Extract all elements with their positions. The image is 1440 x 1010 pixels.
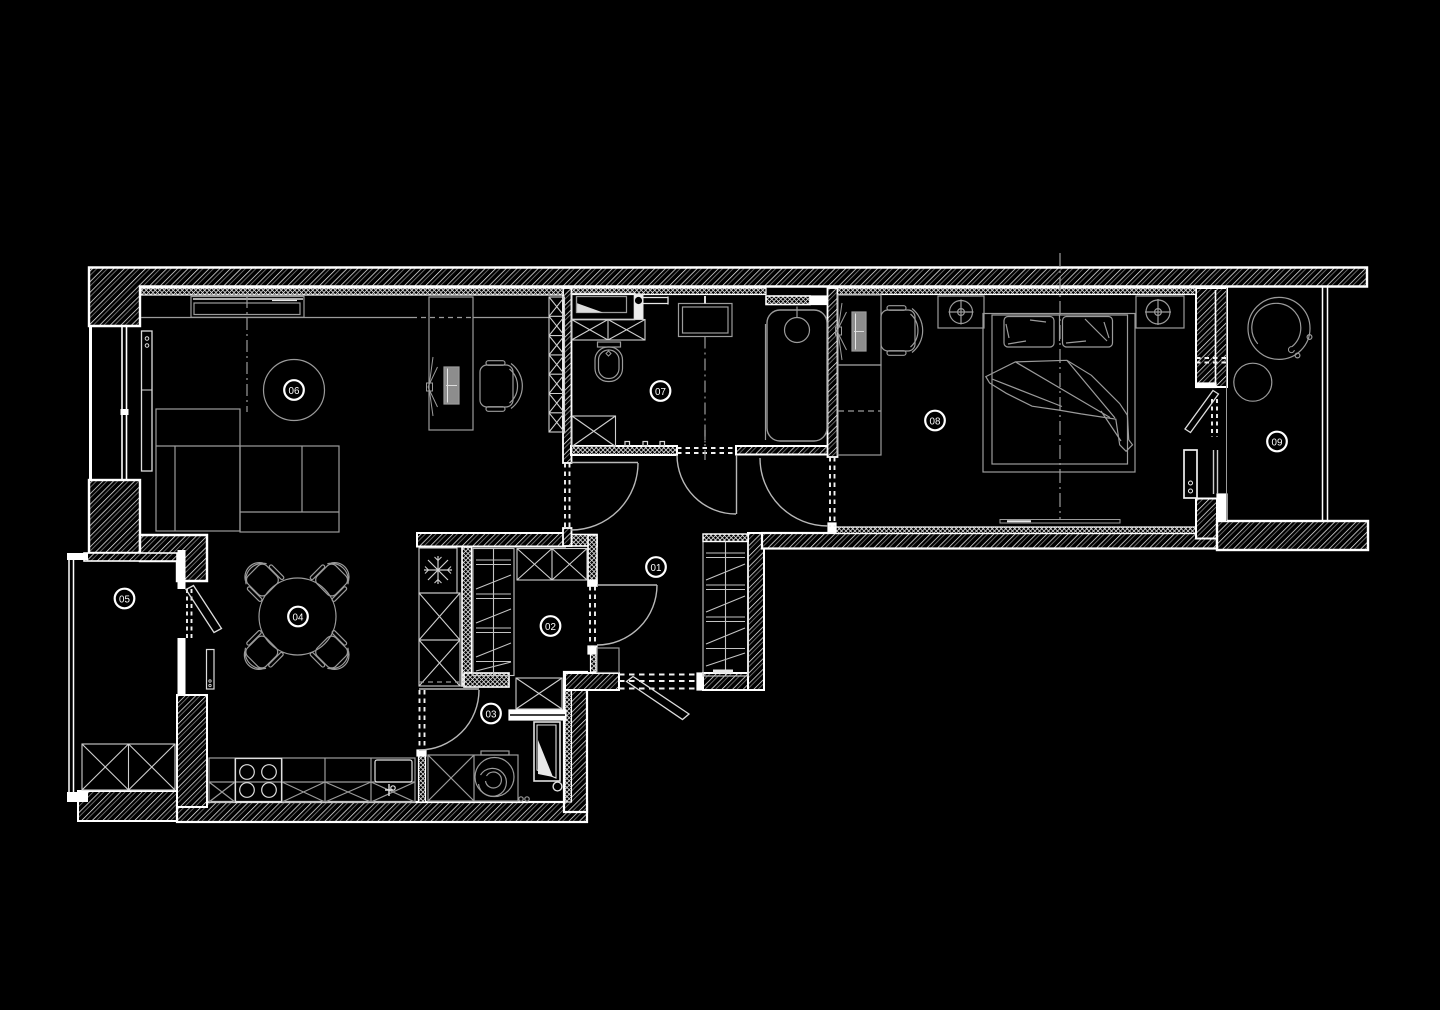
svg-text:07: 07 xyxy=(655,387,666,398)
svg-text:04: 04 xyxy=(293,613,304,624)
svg-text:03: 03 xyxy=(486,710,497,721)
svg-text:01: 01 xyxy=(651,563,662,574)
svg-text:05: 05 xyxy=(119,595,130,606)
svg-text:06: 06 xyxy=(289,386,300,397)
svg-text:02: 02 xyxy=(545,622,556,633)
svg-text:08: 08 xyxy=(930,417,941,428)
svg-text:09: 09 xyxy=(1272,438,1283,449)
